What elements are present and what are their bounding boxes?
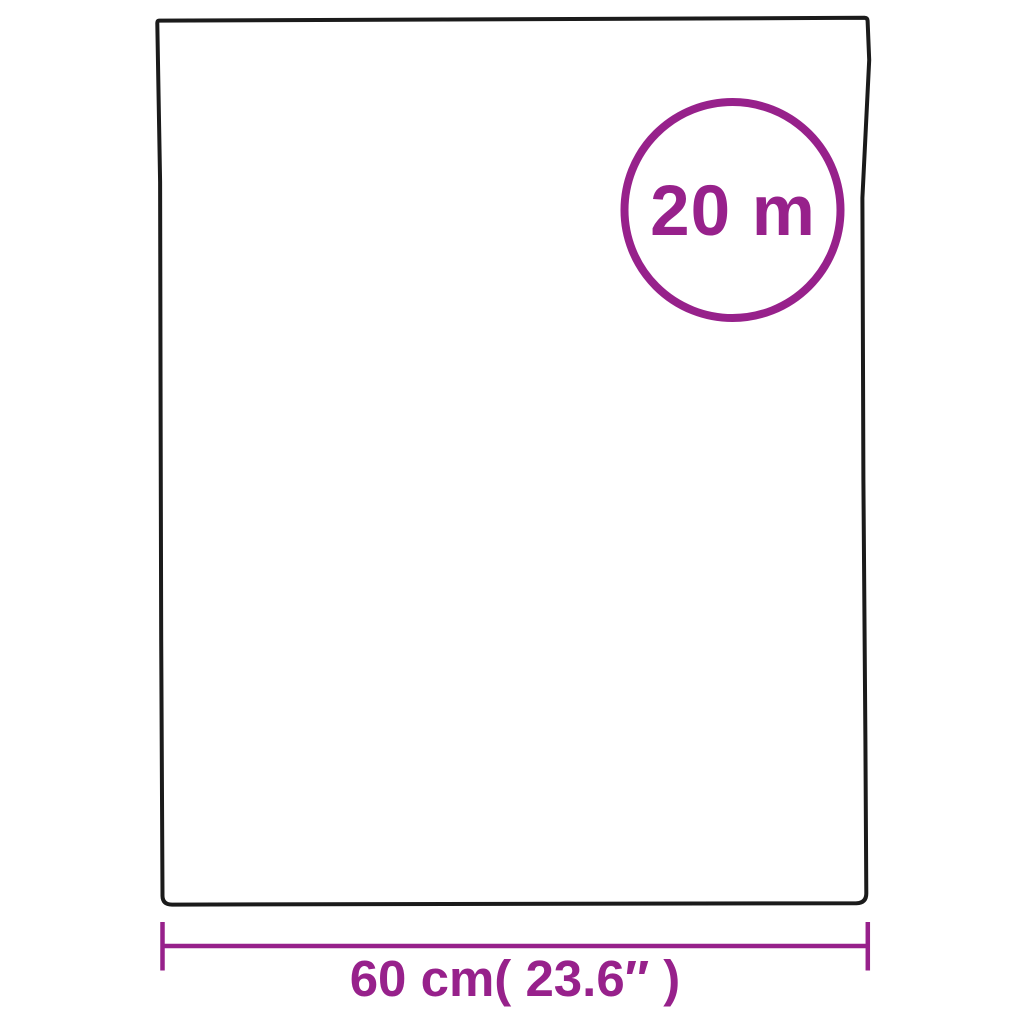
width-dimension-line xyxy=(163,922,868,971)
diagram-canvas xyxy=(0,0,1024,1024)
product-dimension-diagram: 20 m 60 cm( 23.6″ ) xyxy=(0,0,1024,1024)
roll-length-badge-circle xyxy=(625,102,841,318)
